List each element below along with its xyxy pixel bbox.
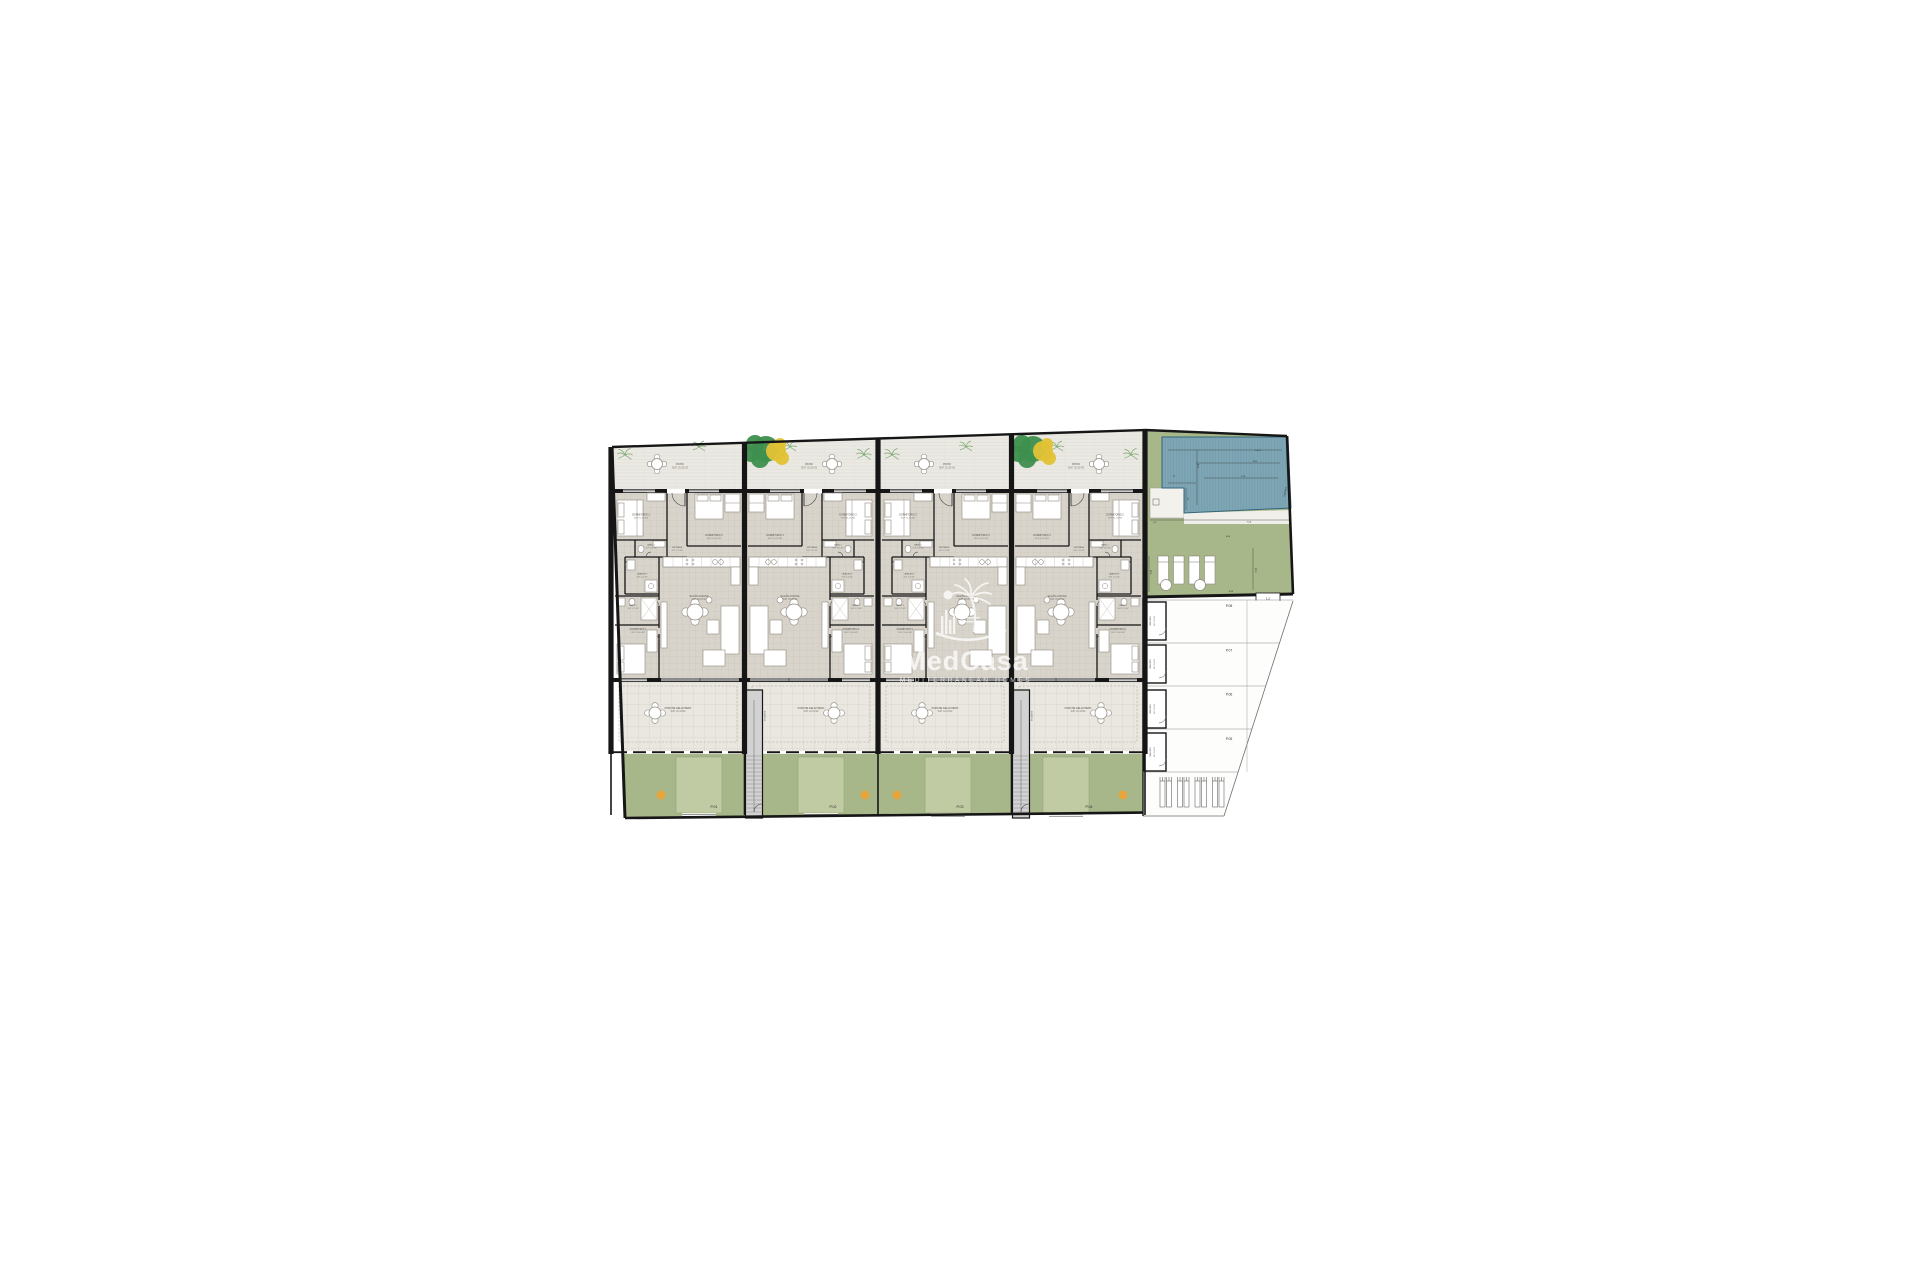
storage-area-label: SUP. 2,65 M2 bbox=[1154, 616, 1156, 626]
watermark-tagline: MEDITERRANEAN HOMES bbox=[900, 677, 1033, 684]
sofa-chaise-icon bbox=[764, 650, 786, 666]
pillow-icon bbox=[885, 503, 891, 517]
entry-door-gap bbox=[667, 489, 685, 493]
sink-icon bbox=[1131, 598, 1139, 606]
room-area-label: SUP. 25,20 M2 bbox=[1068, 466, 1085, 469]
room-name-label: SALÓN-COCINA bbox=[780, 595, 799, 598]
room-area-label: SUP. 3,75 M2 bbox=[1118, 608, 1129, 610]
sink-icon bbox=[864, 598, 872, 606]
pillow-icon bbox=[1132, 520, 1138, 534]
coffee-table-icon bbox=[1037, 620, 1049, 634]
wardrobe-icon bbox=[824, 493, 842, 501]
pillow-icon bbox=[865, 646, 871, 660]
room-area-label: SUP. 11,05 M2 bbox=[1108, 518, 1123, 520]
bike-rack-icon bbox=[1160, 781, 1165, 807]
sink-icon bbox=[653, 541, 665, 547]
fence-gap bbox=[646, 751, 652, 754]
accent-dot bbox=[1119, 791, 1128, 800]
room-area-label: SUP. 11,60 M2 bbox=[898, 632, 912, 634]
room-area-label: SUP. 1,15 M2 bbox=[939, 550, 950, 552]
pillow-icon bbox=[865, 662, 871, 672]
table-icon bbox=[919, 459, 930, 470]
lounger-pillow-icon bbox=[1205, 556, 1216, 562]
room-name-label: BAÑO 1 bbox=[852, 604, 860, 607]
room-area-label: SUP. 25,20 M2 bbox=[672, 466, 689, 469]
room-area-label: SUP. 1,15 M2 bbox=[807, 550, 818, 552]
room-name-label: PORCHE DELANTERO bbox=[665, 707, 692, 710]
room-name-label: BAÑO 2 bbox=[914, 544, 922, 547]
fence-gap bbox=[989, 751, 995, 754]
room-name-label: DORMITORIO 1 bbox=[1110, 629, 1128, 631]
pillow-icon bbox=[977, 495, 988, 501]
lounger-pillow-icon bbox=[1189, 556, 1200, 562]
room-area-label: SUP. 3,16 M2 bbox=[904, 577, 915, 579]
room-name-label: DORMITORIO 3 bbox=[705, 534, 723, 537]
fence-gap bbox=[951, 751, 957, 754]
room-name-label: BAÑO 2 bbox=[834, 544, 842, 547]
fence-gap bbox=[894, 751, 900, 754]
fence-gap bbox=[722, 751, 728, 754]
pillow-icon bbox=[964, 495, 975, 501]
toilet-icon bbox=[638, 545, 644, 552]
table-icon bbox=[687, 604, 703, 620]
washer-icon bbox=[1099, 580, 1111, 592]
storage-label: TRASTERO bbox=[1149, 746, 1152, 757]
room-area-label: SUP. 10,26 M2 bbox=[1035, 538, 1050, 540]
pillow-icon bbox=[697, 495, 708, 501]
fence-gap bbox=[780, 751, 786, 754]
room-name-label: PORCHE DELANTERO bbox=[1065, 707, 1092, 710]
pillow-icon bbox=[865, 520, 871, 534]
garden-parking-pad bbox=[798, 757, 844, 813]
room-area-label: SUP. 30,20 M2 bbox=[783, 599, 799, 601]
entry-door-gap bbox=[934, 489, 952, 493]
washer-icon bbox=[832, 580, 844, 592]
coffee-table-icon bbox=[707, 620, 719, 634]
room-name-label: DORMITORIO 2 bbox=[632, 514, 650, 517]
kitchen-return-counter bbox=[998, 567, 1007, 585]
room-name-label: DORMITORIO 2 bbox=[839, 514, 857, 517]
room-area-label: SUP. 43,44 M2 bbox=[1071, 711, 1087, 713]
pillow-icon bbox=[1132, 646, 1138, 660]
room-area-label: SUP. 11,60 M2 bbox=[631, 632, 645, 634]
room-area-label: SUP. 3,60 M2 bbox=[913, 548, 924, 550]
kitchen-return-counter bbox=[749, 567, 758, 585]
storage-area-label: SUP. 2,65 M2 bbox=[1154, 659, 1156, 669]
wardrobe-icon bbox=[647, 630, 657, 652]
pillow-icon bbox=[1132, 662, 1138, 672]
table-icon bbox=[827, 459, 838, 470]
pillow-icon bbox=[885, 662, 891, 672]
fence-gap bbox=[1123, 751, 1129, 754]
pool-deck bbox=[1150, 488, 1184, 518]
room-name-label: LAVADERO bbox=[1109, 573, 1120, 576]
room-area-label: SUP. 1,15 M2 bbox=[672, 550, 683, 552]
tree-canopy-yellow bbox=[1042, 451, 1056, 465]
watermark-skyline-bar bbox=[941, 616, 943, 634]
pillow-icon bbox=[768, 495, 779, 501]
stairs-label: ESCALERA bbox=[764, 710, 767, 721]
room-name-label: BAÑO 2 bbox=[1101, 544, 1109, 547]
fence-gap bbox=[703, 751, 709, 754]
pool-dimension-label: 10,67 bbox=[1255, 450, 1261, 452]
watermark-sun-icon bbox=[944, 591, 953, 600]
sofa-icon bbox=[750, 606, 768, 654]
table-icon bbox=[649, 707, 661, 719]
table-icon bbox=[1095, 707, 1107, 719]
pillow-icon bbox=[865, 503, 871, 517]
washer-icon bbox=[645, 580, 657, 592]
bike-rack-icon bbox=[1202, 781, 1207, 807]
room-name-label: BAÑO 1 bbox=[896, 604, 904, 607]
wardrobe-icon bbox=[914, 493, 932, 501]
stairs-label: ESCALERA bbox=[1031, 710, 1034, 721]
pillow-icon bbox=[618, 520, 624, 534]
room-name-label: DORMITORIO 1 bbox=[843, 629, 861, 631]
garden-parking-label: P.03 bbox=[957, 805, 964, 809]
room-area-label: SUP. 25,20 M2 bbox=[801, 466, 818, 469]
room-name-label: ENTRADA bbox=[1074, 546, 1084, 549]
room-name-label: DORMITORIO 3 bbox=[766, 534, 784, 537]
watermark-brand: MedCasa bbox=[903, 646, 1029, 676]
watermark-subtext-line bbox=[956, 617, 980, 618]
page-canvas: 10,678,857,292,981,11,60,17,069,604,444,… bbox=[0, 0, 1920, 1280]
laundry-shelf bbox=[894, 560, 902, 570]
storage-label: TRASTERO bbox=[1149, 615, 1152, 626]
room-area-label: SUP. 3,60 M2 bbox=[1100, 548, 1111, 550]
party-wall bbox=[742, 443, 747, 754]
garden-parking-label: P.02 bbox=[830, 805, 837, 809]
kitchen-return-counter bbox=[1016, 567, 1025, 585]
bike-rack-icon bbox=[1195, 781, 1200, 807]
room-name-label: DORMITORIO 1 bbox=[897, 629, 915, 631]
accent-dot bbox=[893, 791, 902, 800]
room-area-label: SUP. 11,60 M2 bbox=[1111, 632, 1125, 634]
fence-gap bbox=[1047, 751, 1053, 754]
room-area-label: SUP. 10,26 M2 bbox=[768, 538, 783, 540]
storage-label: TRASTERO bbox=[1149, 658, 1152, 669]
tree-canopy-yellow bbox=[774, 438, 786, 450]
room-area-label: SUP. 25,20 M2 bbox=[939, 466, 956, 469]
watermark-skyline-bar bbox=[945, 610, 947, 634]
room-name-label: SALÓN-COCINA bbox=[1047, 595, 1066, 598]
wardrobe-icon bbox=[1091, 493, 1109, 501]
lounger-pillow-icon bbox=[1158, 556, 1169, 562]
room-name-label: ENTRADA bbox=[807, 546, 817, 549]
pillow-icon bbox=[1035, 495, 1046, 501]
storage-area-label: SUP. 2,65 M2 bbox=[1154, 747, 1156, 757]
watermark-skyline-bar bbox=[949, 620, 951, 634]
sofa-chaise-icon bbox=[1031, 650, 1053, 666]
storage-label: TRASTERO bbox=[1149, 703, 1152, 714]
table-icon bbox=[828, 707, 840, 719]
fence-gap bbox=[837, 751, 843, 754]
room-area-label: SUP. 3,75 M2 bbox=[851, 608, 862, 610]
fence-gap bbox=[665, 751, 671, 754]
room-name-label: ENTRADA bbox=[672, 546, 682, 549]
room-area-label: SUP. 10,26 M2 bbox=[707, 538, 722, 540]
room-name-label: DORMITORIO 3 bbox=[972, 534, 990, 537]
bike-rack-icon bbox=[1184, 781, 1189, 807]
bike-rack-icon bbox=[1213, 781, 1218, 807]
room-name-label: BAÑO 2 bbox=[647, 544, 655, 547]
floor-plan-svg: 10,678,857,292,981,11,60,17,069,604,444,… bbox=[556, 396, 1336, 852]
fence-gap bbox=[818, 751, 824, 754]
room-name-label: DORMITORIO 2 bbox=[899, 514, 917, 517]
tv-bench-icon bbox=[1089, 602, 1095, 648]
bike-rack-icon bbox=[1167, 781, 1172, 807]
umbrella-icon bbox=[1195, 580, 1206, 591]
tree-canopy-yellow bbox=[1041, 438, 1053, 450]
room-name-label: DORMITORIO 1 bbox=[630, 629, 648, 631]
tv-bench-icon bbox=[822, 602, 828, 648]
parking-space-label: P.08 bbox=[1226, 604, 1233, 608]
entry-door-gap bbox=[804, 489, 822, 493]
room-area-label: SUP. 10,26 M2 bbox=[974, 538, 989, 540]
room-name-label: PORCHE DELANTERO bbox=[932, 707, 959, 710]
lounger-pillow-icon bbox=[1174, 556, 1185, 562]
porch-band-floor bbox=[620, 680, 1145, 754]
tv-bench-icon bbox=[661, 602, 667, 648]
sofa-icon bbox=[721, 606, 739, 654]
accent-dot bbox=[657, 791, 666, 800]
bike-rack-icon bbox=[1178, 781, 1183, 807]
party-wall bbox=[875, 439, 880, 755]
sofa-chaise-icon bbox=[703, 650, 725, 666]
room-area-label: SUP. 30,20 M2 bbox=[692, 599, 708, 601]
garden-parking-pad bbox=[925, 757, 971, 813]
watermark-subtext-line bbox=[960, 621, 976, 622]
fence-gap bbox=[970, 751, 976, 754]
table-icon bbox=[652, 459, 663, 470]
garden-parking-pad bbox=[1043, 757, 1089, 813]
toilet-icon bbox=[1112, 545, 1118, 552]
room-name-label: DORMITORIO 3 bbox=[1033, 534, 1051, 537]
bike-rack-icon bbox=[1219, 781, 1224, 807]
fence-gap bbox=[1104, 751, 1110, 754]
umbrella-icon bbox=[1161, 580, 1172, 591]
room-area-label: SUP. 3,75 M2 bbox=[895, 608, 906, 610]
parking-space-label: P.05 bbox=[1226, 737, 1233, 741]
room-name-label: BAÑO 1 bbox=[1119, 604, 1127, 607]
room-area-label: SUP. 3,16 M2 bbox=[637, 577, 648, 579]
room-area-label: SUP. 3,60 M2 bbox=[646, 548, 657, 550]
toilet-icon bbox=[845, 545, 851, 552]
pillow-icon bbox=[618, 503, 624, 517]
room-name-label: BAÑO 1 bbox=[629, 604, 637, 607]
laundry-shelf bbox=[1121, 560, 1129, 570]
table-icon bbox=[1094, 459, 1105, 470]
pillow-icon bbox=[710, 495, 721, 501]
room-area-label: SUP. 11,60 M2 bbox=[844, 632, 858, 634]
room-name-label: ENTRADA bbox=[939, 546, 949, 549]
laundry-shelf bbox=[627, 560, 635, 570]
accent-dot bbox=[861, 791, 870, 800]
pillow-icon bbox=[781, 495, 792, 501]
wardrobe-icon bbox=[647, 493, 665, 501]
storage-area-label: SUP. 2,65 M2 bbox=[1154, 704, 1156, 714]
kitchen-return-counter bbox=[731, 567, 740, 585]
tree-canopy-yellow bbox=[775, 451, 789, 465]
room-name-label: LAVADERO bbox=[637, 573, 648, 576]
garden-parking-label: P.01 bbox=[711, 805, 718, 809]
room-area-label: SUP. 43,44 M2 bbox=[804, 711, 820, 713]
fence-gap bbox=[913, 751, 919, 754]
wardrobe-icon bbox=[1099, 630, 1109, 652]
fence-gap bbox=[627, 751, 633, 754]
fence-gap bbox=[1066, 751, 1072, 754]
room-name-label: LAVADERO bbox=[842, 573, 853, 576]
room-area-label: SUP. 11,05 M2 bbox=[634, 518, 649, 520]
parking-space-label: P.06 bbox=[1226, 693, 1233, 697]
room-area-label: SUP. 3,16 M2 bbox=[842, 577, 853, 579]
room-area-label: SUP. 11,05 M2 bbox=[841, 518, 856, 520]
table-icon bbox=[916, 707, 928, 719]
sink-icon bbox=[884, 598, 892, 606]
pillow-icon bbox=[885, 520, 891, 534]
room-name-label: LAVADERO bbox=[904, 573, 915, 576]
room-area-label: SUP. 11,05 M2 bbox=[901, 518, 916, 520]
wardrobe-icon bbox=[832, 630, 842, 652]
room-area-label: SUP. 3,60 M2 bbox=[833, 548, 844, 550]
fence-gap bbox=[799, 751, 805, 754]
parking-area: TRASTEROSUP. 2,65 M2TRASTEROSUP. 2,65 M2… bbox=[1143, 598, 1293, 816]
garden-parking-label: P.04 bbox=[1086, 805, 1093, 809]
room-area-label: SUP. 3,16 M2 bbox=[1109, 577, 1120, 579]
pool-garden-area: 10,678,857,292,981,11,60,17,069,604,444,… bbox=[1144, 430, 1293, 602]
table-icon bbox=[786, 604, 802, 620]
pillow-icon bbox=[1048, 495, 1059, 501]
tv-bench-icon bbox=[928, 602, 934, 648]
entry-door-gap bbox=[1071, 489, 1089, 493]
room-area-label: SUP. 43,44 M2 bbox=[671, 711, 687, 713]
party-wall bbox=[1142, 430, 1147, 754]
fence-gap bbox=[932, 751, 938, 754]
room-area-label: SUP. 43,44 M2 bbox=[938, 711, 954, 713]
watermark-skyline-bar bbox=[953, 614, 955, 634]
sink-icon bbox=[920, 541, 932, 547]
fence-gap bbox=[1085, 751, 1091, 754]
party-wall bbox=[1009, 434, 1014, 754]
room-name-label: SALÓN-COCINA bbox=[689, 595, 708, 598]
room-area-label: SUP. 3,75 M2 bbox=[628, 608, 639, 610]
parking-space-label: P.07 bbox=[1226, 649, 1233, 653]
coffee-table-icon bbox=[770, 620, 782, 634]
toilet-icon bbox=[905, 545, 911, 552]
table-icon bbox=[1053, 604, 1069, 620]
fence-gap bbox=[856, 751, 862, 754]
washer-icon bbox=[912, 580, 924, 592]
room-area-label: SUP. 30,20 M2 bbox=[1050, 599, 1066, 601]
room-name-label: PORCHE DELANTERO bbox=[798, 707, 825, 710]
room-area-label: SUP. 1,15 M2 bbox=[1074, 550, 1085, 552]
room-name-label: DORMITORIO 2 bbox=[1106, 514, 1124, 517]
pillow-icon bbox=[885, 646, 891, 660]
fence-gap bbox=[684, 751, 690, 754]
laundry-shelf bbox=[854, 560, 862, 570]
pillow-icon bbox=[1132, 503, 1138, 517]
